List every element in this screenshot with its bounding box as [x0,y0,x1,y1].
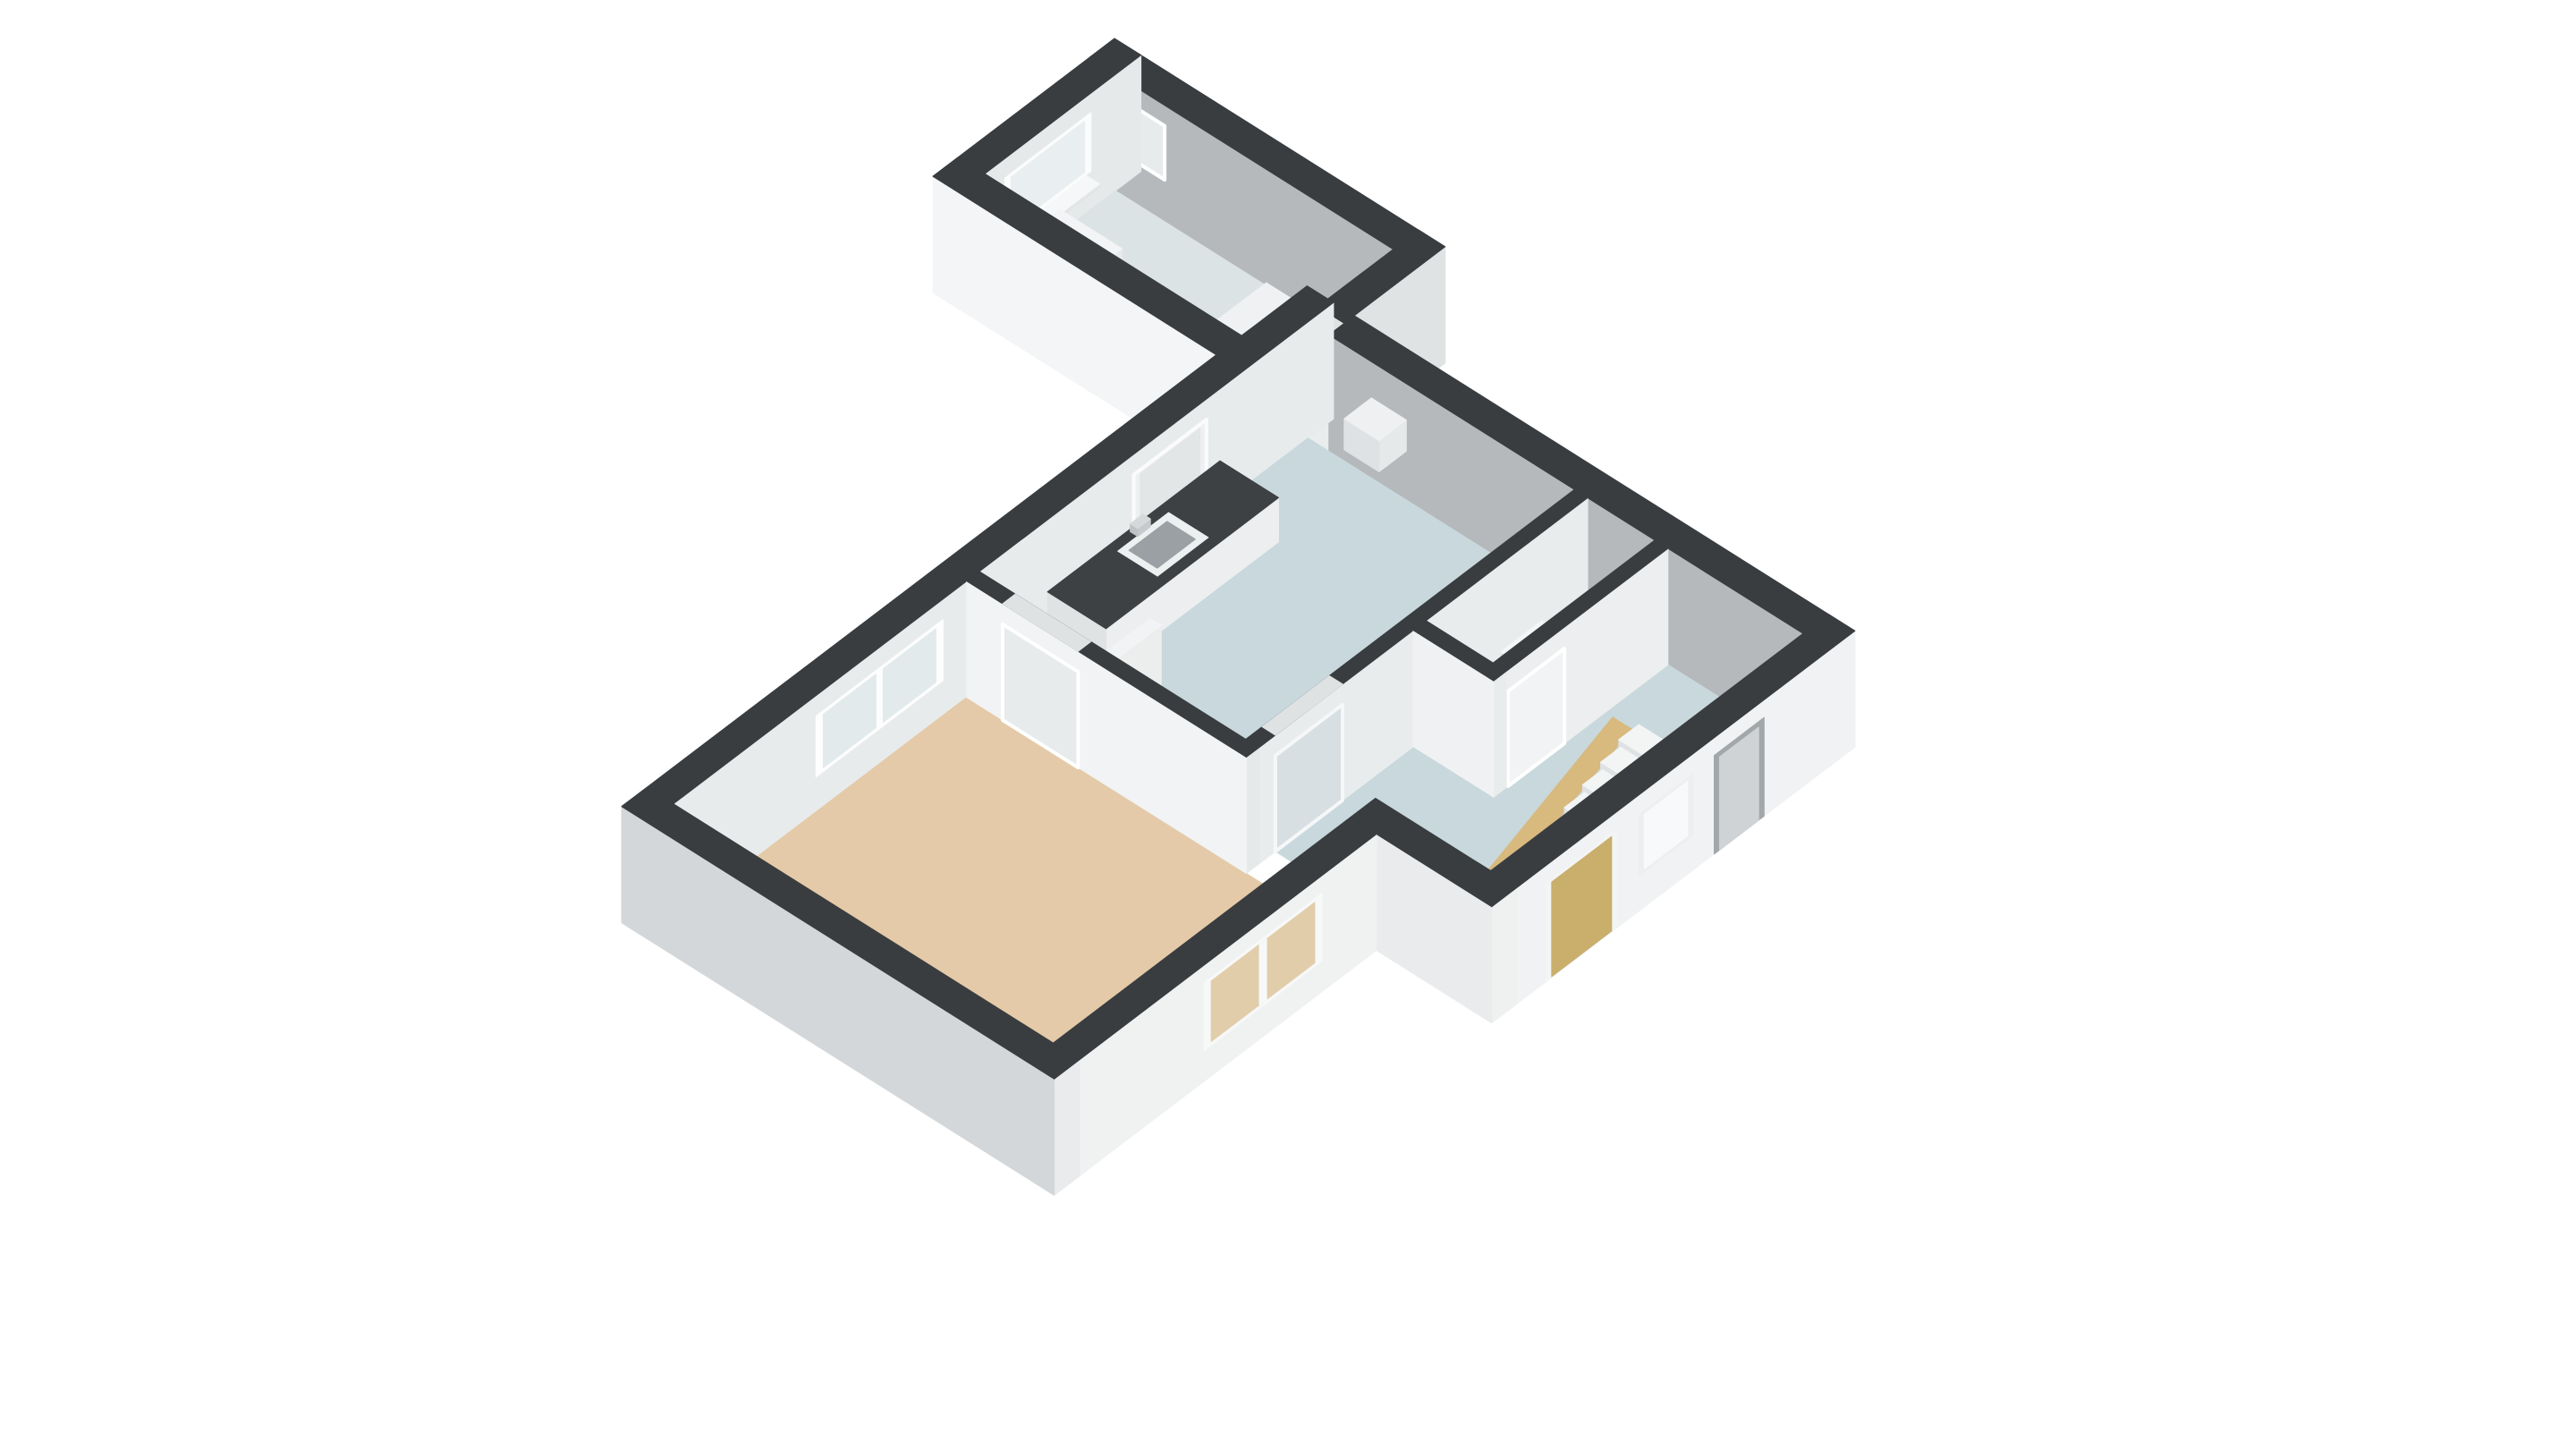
floorplan-3d-view [0,0,2576,1449]
floorplan-svg [0,0,2576,1449]
living-se-window-mullion [1259,939,1267,1005]
